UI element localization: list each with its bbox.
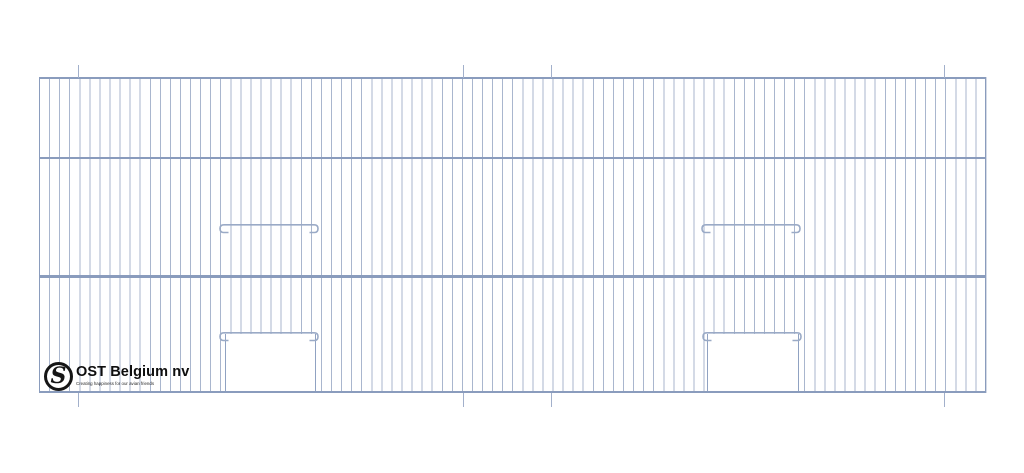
bend-mark-top-2 — [463, 65, 465, 78]
bend-mark-bottom-3 — [551, 393, 553, 407]
door-slide-rail-right — [702, 331, 802, 342]
bend-mark-top-4 — [944, 65, 946, 78]
logo-text-block: OST Belgium nv Creating happiness for ou… — [76, 362, 218, 390]
bend-mark-bottom-4 — [944, 393, 946, 407]
logo-monogram: S — [51, 365, 67, 387]
frame-rail-lower-middle — [39, 275, 986, 277]
company-logo: S OST Belgium nv Creating happiness for … — [44, 362, 218, 391]
perch-rail-left — [219, 223, 319, 234]
perch-rail-right — [701, 223, 801, 234]
frame-rail-bottom — [39, 391, 986, 393]
company-tagline: Creating happiness for our avian friends — [76, 381, 154, 386]
panel-right-edge-wire — [985, 77, 987, 393]
company-name: OST Belgium nv — [76, 365, 218, 380]
panel-left-edge-wire — [39, 77, 41, 393]
bend-mark-bottom-2 — [463, 393, 465, 407]
bend-mark-bottom-1 — [78, 393, 80, 407]
frame-rail-upper-middle — [39, 157, 986, 159]
logo-monogram-circle: S — [44, 362, 73, 391]
door-opening-left — [225, 334, 316, 391]
cage-front-drawing: S OST Belgium nv Creating happiness for … — [0, 0, 1024, 473]
door-opening-right — [707, 334, 799, 391]
door-slide-rail-left — [219, 331, 319, 342]
bend-mark-top-1 — [78, 65, 80, 78]
mesh-wires — [39, 77, 987, 393]
frame-rail-top — [39, 77, 986, 79]
bend-mark-top-3 — [551, 65, 553, 78]
